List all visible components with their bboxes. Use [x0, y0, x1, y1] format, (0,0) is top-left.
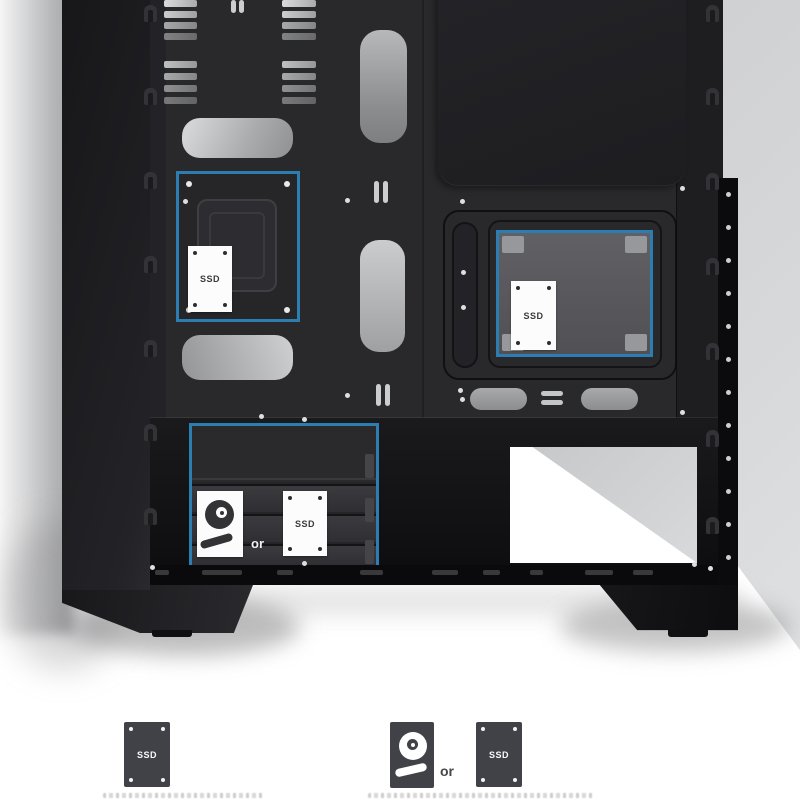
screw-dot	[345, 393, 350, 398]
hdd-actuator-arm-icon	[395, 763, 428, 778]
ssd-card: SSD	[511, 281, 556, 350]
screw-hole-icon	[516, 286, 520, 290]
rivet-dot	[726, 357, 731, 362]
screw-dot	[460, 397, 465, 402]
screw-hole-icon	[513, 778, 517, 782]
clip-tab-icon	[144, 256, 157, 273]
rivet-dot	[726, 258, 731, 263]
hdd-cage-edge	[192, 478, 376, 480]
vent-slat	[164, 97, 197, 104]
psu-shroud-panel	[438, 0, 686, 186]
screw-hole-icon	[223, 251, 227, 255]
vent-slat	[282, 11, 316, 18]
screw-hole-icon	[288, 547, 292, 551]
screw-hole-icon	[513, 727, 517, 731]
cropped-caption-fragment	[368, 793, 593, 798]
screw-hole-icon	[318, 496, 322, 500]
compartment-edge	[150, 417, 722, 418]
screw-hole-icon	[318, 547, 322, 551]
vent-slat	[282, 97, 316, 104]
rivet-dot	[726, 456, 731, 461]
front-foot-pad	[152, 630, 192, 637]
hdd-spindle-hole-icon	[220, 511, 224, 515]
rail-vent-slot	[432, 570, 458, 575]
screw-hole-icon	[193, 251, 197, 255]
cable-tie-point-icon	[231, 0, 236, 13]
vent-slat	[282, 22, 316, 29]
screw-dot	[680, 410, 685, 415]
hdd-cage-highlight: or SSD	[189, 423, 379, 567]
vent-slat	[164, 33, 197, 40]
hdd-card	[197, 491, 243, 557]
legend-ssd-label: SSD	[137, 750, 157, 760]
screw-hole-icon	[223, 303, 227, 307]
vent-slat	[282, 73, 316, 80]
cable-grommet-top-left	[182, 118, 293, 158]
screw-hole-icon	[547, 286, 551, 290]
clip-tab-icon	[144, 424, 157, 441]
hdd-cage-top	[192, 426, 376, 482]
vent-bar-icon	[541, 391, 563, 396]
screw-dot	[183, 199, 188, 204]
cable-tie-point-icon	[239, 0, 244, 13]
vent-bar-icon	[541, 400, 563, 405]
rail-vent-slot	[360, 570, 383, 575]
clip-tab-icon	[144, 340, 157, 357]
cable-grommet-bottom-left	[182, 335, 293, 380]
screw-dot	[692, 562, 697, 567]
screw-dot	[708, 566, 713, 571]
screw-dot	[460, 199, 465, 204]
clip-tab-icon	[144, 5, 157, 22]
screw-hole-icon	[481, 778, 485, 782]
screw-dot	[680, 186, 685, 191]
clip-tab-icon	[706, 5, 719, 22]
cutout-pill	[581, 388, 638, 410]
rivet-dot	[726, 291, 731, 296]
rail-vent-slot	[155, 570, 169, 575]
vent-slat	[282, 0, 316, 7]
case-bottom-rail	[150, 565, 722, 585]
cage-mount-tab	[365, 454, 374, 478]
legend-ssd-bracket-icon: SSD	[124, 722, 170, 787]
screw-hole-icon	[547, 341, 551, 345]
cropped-caption-fragment	[103, 793, 263, 798]
vent-slat	[282, 33, 316, 40]
screw-dot	[461, 305, 466, 310]
rubber-pad-icon	[625, 236, 647, 253]
screw-hole-icon	[161, 778, 165, 782]
vent-slat	[282, 85, 316, 92]
hdd-spindle-hole-icon	[411, 743, 415, 747]
clip-tab-icon	[706, 173, 719, 190]
cable-grommet-middle-top	[360, 30, 407, 143]
screw-dot	[345, 198, 350, 203]
rail-vent-slot	[633, 570, 653, 575]
clip-tab-icon	[706, 88, 719, 105]
cable-tie-point-icon	[374, 181, 379, 203]
vent-slat	[164, 0, 197, 7]
vent-slat	[164, 11, 197, 18]
ssd-card: SSD	[283, 491, 327, 556]
rivet-dot	[726, 225, 731, 230]
screw-hole-icon	[193, 303, 197, 307]
rail-vent-slot	[585, 570, 613, 575]
vent-slat	[164, 73, 197, 80]
screw-dot	[302, 561, 307, 566]
legend-or-label: or	[440, 763, 454, 779]
screw-hole-icon	[288, 496, 292, 500]
screw-dot	[461, 270, 466, 275]
screw-hole-icon	[481, 727, 485, 731]
cage-mount-tab	[365, 498, 374, 522]
screw-dot	[458, 388, 463, 393]
ssd-mount-top-left-highlight: SSD	[176, 171, 300, 322]
rear-foot-pad	[668, 630, 708, 637]
screw-dot	[259, 414, 264, 419]
screw-hole-icon	[129, 778, 133, 782]
cable-grommet-middle-bottom	[360, 240, 405, 352]
rivet-dot	[726, 489, 731, 494]
clip-tab-icon	[706, 430, 719, 447]
rivet-dot	[726, 522, 731, 527]
rail-vent-slot	[483, 570, 500, 575]
or-label: or	[251, 536, 264, 551]
clip-tab-icon	[144, 172, 157, 189]
standoff-dot-icon	[284, 307, 290, 313]
screw-dot	[150, 565, 155, 570]
ssd-card: SSD	[188, 246, 232, 312]
case-front-panel	[62, 0, 150, 590]
cable-tie-point-icon	[383, 181, 388, 203]
clip-tab-icon	[706, 343, 719, 360]
ssd-card-label: SSD	[200, 274, 220, 284]
clip-tab-icon	[706, 258, 719, 275]
rubber-pad-icon	[625, 334, 647, 351]
ssd-card-label: SSD	[523, 311, 543, 321]
rail-vent-slot	[277, 570, 293, 575]
cutout-pill	[470, 388, 527, 410]
rail-vent-slot	[202, 570, 242, 575]
clip-tab-icon	[144, 88, 157, 105]
vent-slat	[164, 22, 197, 29]
vent-slat	[164, 61, 197, 68]
legend-hdd-icon	[390, 722, 434, 788]
screw-dot	[302, 417, 307, 422]
screw-hole-icon	[161, 727, 165, 731]
rail-vent-slot	[530, 570, 543, 575]
vent-slat	[282, 61, 316, 68]
legend-ssd-bracket-icon: SSD	[476, 722, 522, 787]
case-bottom-opening	[510, 447, 697, 563]
vertical-cable-slot	[452, 222, 478, 368]
opening-shadow-wedge	[510, 447, 697, 563]
rivet-dot	[726, 423, 731, 428]
screw-hole-icon	[129, 727, 133, 731]
vent-slat	[164, 85, 197, 92]
rivet-dot	[726, 192, 731, 197]
cable-tie-point-icon	[385, 384, 390, 406]
hdd-actuator-arm-icon	[200, 533, 234, 550]
standoff-dot-icon	[284, 181, 290, 187]
standoff-dot-icon	[186, 181, 192, 187]
ssd-mount-right-highlight: SSD	[496, 230, 653, 357]
ssd-card-label: SSD	[295, 519, 315, 529]
clip-tab-icon	[144, 508, 157, 525]
rivet-dot	[726, 555, 731, 560]
rubber-pad-icon	[502, 236, 524, 253]
screw-hole-icon	[516, 341, 520, 345]
tray-seam	[422, 0, 424, 418]
legend-ssd-label: SSD	[489, 750, 509, 760]
cage-mount-tab	[365, 540, 374, 564]
cable-tie-point-icon	[376, 384, 381, 406]
pc-case-drive-mount-diagram: SSD SSD	[0, 0, 800, 800]
rivet-dot	[726, 390, 731, 395]
rivet-dot	[726, 324, 731, 329]
clip-tab-icon	[706, 517, 719, 534]
